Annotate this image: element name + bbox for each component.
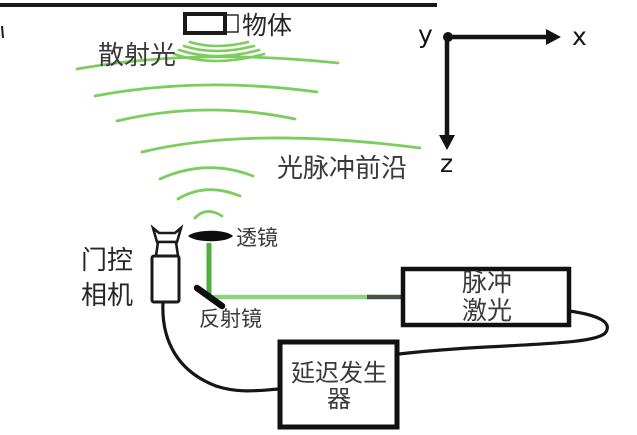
camera-hood: [153, 228, 181, 242]
pulse-arc-6: [178, 190, 240, 199]
delay-generator-label-line1: 延迟发生: [291, 359, 387, 387]
object-box: [185, 14, 225, 33]
setup-diagram-svg: 物体 散射光 光脉冲前沿 x y z 透镜 门控 相机 反射镜 脉冲 激光 延迟…: [0, 0, 637, 435]
camera-body: [152, 256, 179, 302]
light-pulse-front-label: 光脉冲前沿: [277, 154, 407, 184]
scattered-light-label: 散射光: [98, 41, 176, 71]
pulsed-laser-label-line2: 激光: [462, 296, 512, 325]
pulse-arc-3: [117, 110, 295, 121]
delay-generator-label-line2: 器: [327, 385, 351, 413]
left-edge-tick-mark: [2, 26, 3, 38]
gated-camera-icon: [152, 228, 181, 302]
x-axis-arrowhead-icon: [546, 29, 561, 45]
camera-neck: [156, 242, 178, 256]
lens-icon: [188, 231, 233, 242]
gated-camera-label-line1: 门控: [81, 246, 133, 276]
x-axis-label: x: [572, 22, 587, 51]
y-axis-label: y: [418, 20, 433, 49]
pulse-arc-4: [142, 138, 420, 152]
mirror-label: 反射镜: [199, 307, 262, 331]
light-pulse-front-arcs: [77, 57, 420, 218]
gated-camera-label-line2: 相机: [81, 281, 133, 311]
pulse-arc-7: [195, 211, 222, 218]
scattered-arc-1: [190, 42, 248, 46]
z-axis-arrowhead-icon: [439, 135, 455, 150]
pulsed-laser-label-line1: 脉冲: [462, 268, 512, 297]
object-label: 物体: [242, 11, 292, 40]
coordinate-axes: x y z: [418, 20, 587, 178]
lens-label: 透镜: [236, 226, 278, 250]
pulse-arc-5: [160, 168, 253, 179]
z-axis-label: z: [440, 149, 453, 178]
pulse-arc-2: [95, 85, 317, 96]
diagram-canvas: 物体 散射光 光脉冲前沿 x y z 透镜 门控 相机 反射镜 脉冲 激光 延迟…: [0, 0, 637, 435]
